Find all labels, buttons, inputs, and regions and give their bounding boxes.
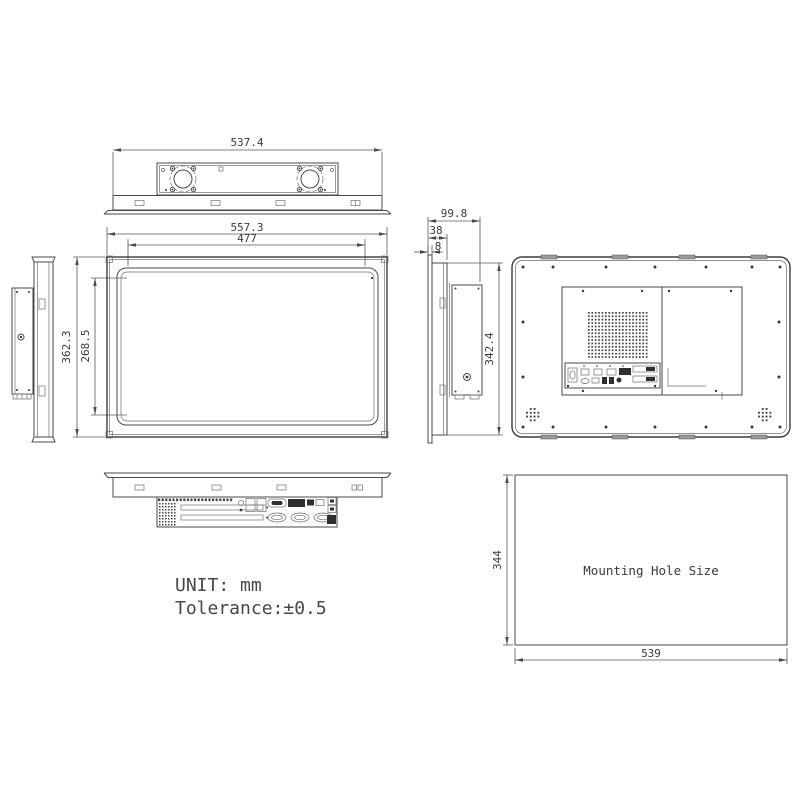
- vent-dot: [602, 346, 604, 348]
- vent-dot: [605, 353, 607, 355]
- vent-dot: [588, 332, 590, 334]
- vent-dot: [642, 343, 644, 345]
- vent-dot: [629, 356, 631, 358]
- fan-ring-left-icon: [170, 166, 196, 192]
- vent-dot: [602, 343, 604, 345]
- dim-side-rear-height: 342.4: [445, 263, 503, 435]
- mounting-cutout-rect: [515, 475, 787, 645]
- vent-dot: [622, 349, 624, 351]
- speaker-hole: [534, 419, 536, 421]
- speaker-hole: [526, 412, 528, 414]
- vent-dot: [602, 356, 604, 358]
- vent-dot: [168, 515, 170, 517]
- top-mount-bar: [113, 196, 382, 211]
- vent-dot: [632, 326, 634, 328]
- vent-dot: [588, 336, 590, 338]
- vent-dot: [642, 339, 644, 341]
- vent-dot: [646, 312, 648, 314]
- speaker-hole: [537, 416, 539, 418]
- vent-dot: [608, 339, 610, 341]
- vent-dot: [615, 336, 617, 338]
- vent-dot: [639, 346, 641, 348]
- vent-dot: [636, 346, 638, 348]
- screw: [552, 266, 555, 269]
- vent-dot: [608, 349, 610, 351]
- vent-dot: [632, 336, 634, 338]
- vent-dot: [608, 356, 610, 358]
- plate-screw: [324, 189, 326, 191]
- vent-dot: [595, 315, 597, 317]
- vent-dot: [619, 329, 621, 331]
- vent-dot: [642, 319, 644, 321]
- vent-dot: [230, 499, 232, 502]
- vent-dot: [619, 336, 621, 338]
- vent-dot: [171, 518, 173, 520]
- vent-dot: [642, 329, 644, 331]
- screw: [641, 290, 643, 292]
- vent-dot: [591, 329, 593, 331]
- front-display-opening: [117, 268, 378, 425]
- vent-dot: [602, 326, 604, 328]
- vent-dot: [595, 336, 597, 338]
- vent-dot: [159, 512, 161, 514]
- vent-dot: [612, 329, 614, 331]
- dim-label-344: 344: [491, 550, 504, 570]
- vent-dot: [165, 512, 167, 514]
- vent-dot: [162, 524, 164, 526]
- vent-dot: [608, 312, 610, 314]
- vent-dot: [605, 319, 607, 321]
- vent-dot: [646, 336, 648, 338]
- vent-dot: [629, 353, 631, 355]
- vent-dot: [205, 499, 207, 502]
- vent-dot: [629, 339, 631, 341]
- vent-dot: [622, 336, 624, 338]
- speaker-hole: [534, 416, 536, 418]
- vent-dot: [174, 518, 176, 520]
- vent-dot: [642, 353, 644, 355]
- rear-cover-outer: [512, 257, 790, 437]
- vent-dot: [622, 343, 624, 345]
- vent-dot: [602, 322, 604, 324]
- vent-dot: [629, 315, 631, 317]
- vent-dot: [629, 349, 631, 351]
- vent-dot: [615, 353, 617, 355]
- vent-dot: [171, 512, 173, 514]
- vent-dot: [602, 312, 604, 314]
- vent-dot: [162, 515, 164, 517]
- vent-dot: [615, 329, 617, 331]
- vent-dot: [165, 521, 167, 523]
- vent-dot: [646, 339, 648, 341]
- vent-dot: [639, 319, 641, 321]
- vent-dot: [625, 319, 627, 321]
- top-mount-slots: [135, 201, 360, 206]
- vent-dot: [190, 499, 192, 502]
- dim-mounting-height: 344: [491, 475, 513, 645]
- vent-dot: [605, 332, 607, 334]
- vent-dot: [622, 339, 624, 341]
- bottom-mount-slots: [135, 485, 363, 490]
- vent-dot: [619, 349, 621, 351]
- vent-dot: [619, 315, 621, 317]
- vent-dot: [174, 512, 176, 514]
- speaker-hole: [530, 412, 532, 414]
- mounting-hole-label: Mounting Hole Size: [583, 563, 718, 578]
- front-display-area: [121, 272, 374, 421]
- vent-dot: [159, 503, 161, 505]
- speaker-hole: [758, 416, 760, 418]
- vent-dot: [636, 312, 638, 314]
- vent-dot: [612, 353, 614, 355]
- vent-dot: [632, 312, 634, 314]
- vent-dot: [605, 315, 607, 317]
- screw: [779, 426, 782, 429]
- vent-dot: [636, 332, 638, 334]
- vent-dot: [629, 336, 631, 338]
- vent-dot: [591, 326, 593, 328]
- vent-dot: [608, 353, 610, 355]
- vent-dot: [636, 326, 638, 328]
- vent-dot: [198, 499, 200, 502]
- vent-dot: [591, 315, 593, 317]
- speaker-hole: [530, 408, 532, 410]
- vent-dot: [636, 329, 638, 331]
- vent-dot: [608, 326, 610, 328]
- vent-dot: [162, 503, 164, 505]
- screw: [522, 376, 525, 379]
- vent-dot: [639, 343, 641, 345]
- vent-dot: [588, 315, 590, 317]
- vent-dot: [636, 319, 638, 321]
- serial-port-top: [268, 499, 286, 507]
- screw: [582, 390, 584, 392]
- vent-dot: [602, 315, 604, 317]
- bottom-view: [104, 473, 391, 527]
- vent-dot: [636, 336, 638, 338]
- speaker-hole: [762, 412, 764, 414]
- vent-dot: [636, 322, 638, 324]
- screw: [522, 266, 525, 269]
- vent-dot: [605, 339, 607, 341]
- vent-dot: [622, 356, 624, 358]
- vent-dot: [639, 329, 641, 331]
- vent-dot: [619, 353, 621, 355]
- vent-dot: [168, 521, 170, 523]
- vent-dot: [629, 312, 631, 314]
- vent-dot: [619, 322, 621, 324]
- vent-dot: [591, 356, 593, 358]
- vent-dot: [598, 319, 600, 321]
- vent-dot: [605, 336, 607, 338]
- right-chassis: [450, 283, 483, 399]
- vent-dot: [598, 343, 600, 345]
- vent-dot: [629, 346, 631, 348]
- vent-dot: [174, 515, 176, 517]
- vent-dot: [588, 329, 590, 331]
- vent-dot: [219, 499, 221, 502]
- vent-dot: [608, 346, 610, 348]
- vent-dot: [625, 329, 627, 331]
- vent-dot: [165, 515, 167, 517]
- bottom-vent-row: [158, 499, 232, 502]
- left-clamp-slot: [39, 386, 45, 396]
- vent-dot: [159, 506, 161, 508]
- unit-note: UNIT: mm: [175, 575, 262, 596]
- vent-dot: [591, 336, 593, 338]
- vent-dot: [646, 326, 648, 328]
- vent-dot: [598, 346, 600, 348]
- vent-dot: [636, 343, 638, 345]
- screw: [522, 426, 525, 429]
- front-sensor-dot: [371, 277, 373, 279]
- screw: [567, 385, 569, 387]
- vent-dot: [625, 332, 627, 334]
- vent-dot: [212, 499, 214, 502]
- vent-dot: [162, 512, 164, 514]
- vent-dot: [174, 524, 176, 526]
- vent-dot: [598, 329, 600, 331]
- vent-dot: [602, 319, 604, 321]
- vent-dot: [598, 322, 600, 324]
- vent-dot: [595, 346, 597, 348]
- vent-dot: [608, 343, 610, 345]
- vent-dot: [187, 499, 189, 502]
- vent-dot: [602, 339, 604, 341]
- vent-dot: [612, 349, 614, 351]
- bottom-io-block: [157, 497, 337, 527]
- vent-dot: [612, 346, 614, 348]
- vent-dot: [615, 315, 617, 317]
- display-port: [307, 500, 314, 506]
- vent-dot: [612, 322, 614, 324]
- vent-dot: [622, 346, 624, 348]
- vent-dot: [598, 312, 600, 314]
- vent-dot: [625, 336, 627, 338]
- speaker-hole: [534, 412, 536, 414]
- screw: [552, 426, 555, 429]
- vent-dot: [636, 315, 638, 317]
- vent-dot: [162, 509, 164, 511]
- vent-dot: [591, 339, 593, 341]
- speaker-hole: [530, 419, 532, 421]
- vent-dot: [591, 312, 593, 314]
- vent-dot: [605, 349, 607, 351]
- front-corner-seams: [106, 256, 388, 438]
- rear-bracket-mark: [668, 368, 706, 386]
- vent-dot: [595, 322, 597, 324]
- vent-dot: [632, 332, 634, 334]
- vent-dot: [625, 315, 627, 317]
- vent-dot: [591, 343, 593, 345]
- vent-dot: [646, 353, 648, 355]
- vent-dot: [223, 499, 225, 502]
- screw: [522, 321, 525, 324]
- vent-dot: [642, 356, 644, 358]
- vent-dot: [625, 346, 627, 348]
- vent-dot: [588, 312, 590, 314]
- vent-dot: [591, 332, 593, 334]
- vent-dot: [165, 524, 167, 526]
- vent-dot: [602, 353, 604, 355]
- screw: [654, 385, 656, 387]
- vent-dot: [622, 353, 624, 355]
- bottom-bezel-lip: [104, 473, 391, 478]
- vent-dot: [639, 326, 641, 328]
- vent-dot: [642, 349, 644, 351]
- vent-dot: [615, 312, 617, 314]
- vent-dot: [619, 312, 621, 314]
- vent-dot: [622, 329, 624, 331]
- vent-dot: [168, 512, 170, 514]
- vent-dot: [591, 346, 593, 348]
- vent-dot: [615, 356, 617, 358]
- lan-ports: [328, 498, 336, 513]
- vent-dot: [588, 326, 590, 328]
- vent-dot: [639, 336, 641, 338]
- vent-dot: [619, 326, 621, 328]
- vent-dot: [605, 326, 607, 328]
- vent-dot: [159, 521, 161, 523]
- vent-dot: [612, 319, 614, 321]
- left-clamp-slot: [39, 299, 45, 309]
- dim-label-38: 38: [429, 224, 442, 237]
- vent-dot: [619, 319, 621, 321]
- vent-dot: [615, 349, 617, 351]
- mounting-hole-view: Mounting Hole Size 344 539: [491, 475, 787, 664]
- speaker-hole: [766, 419, 768, 421]
- vent-dot: [608, 319, 610, 321]
- vent-dot: [608, 332, 610, 334]
- vent-dot: [588, 339, 590, 341]
- vent-dot: [165, 499, 167, 502]
- speaker-hole: [530, 416, 532, 418]
- vent-dot: [622, 322, 624, 324]
- vent-dot: [632, 356, 634, 358]
- vent-dot: [646, 343, 648, 345]
- vent-dot: [625, 353, 627, 355]
- top-rear-plate: [157, 163, 338, 195]
- vent-dot: [208, 499, 210, 502]
- vent-dot: [642, 315, 644, 317]
- vent-dot: [158, 499, 160, 502]
- vent-dot: [605, 329, 607, 331]
- vent-dot: [598, 349, 600, 351]
- dim-mounting-width: 539: [515, 647, 787, 664]
- vent-dot: [625, 326, 627, 328]
- top-bezel-lip: [104, 211, 391, 215]
- vent-dot: [183, 499, 185, 502]
- vent-dot: [639, 356, 641, 358]
- vent-dot: [168, 506, 170, 508]
- vent-dot: [605, 356, 607, 358]
- dim-side-front-lip: 8: [414, 240, 443, 255]
- vent-dot: [632, 319, 634, 321]
- speaker-hole: [769, 416, 771, 418]
- vent-dot: [595, 343, 597, 345]
- vent-dot: [165, 506, 167, 508]
- vent-dot: [615, 346, 617, 348]
- vent-dot: [622, 326, 624, 328]
- speaker-hole: [537, 412, 539, 414]
- vent-dot: [615, 343, 617, 345]
- vent-dot: [168, 509, 170, 511]
- vent-dot: [632, 353, 634, 355]
- vent-dot: [646, 329, 648, 331]
- dim-label-362-3: 362.3: [60, 330, 73, 363]
- dim-label-268-5: 268.5: [79, 329, 92, 362]
- vent-dot: [646, 332, 648, 334]
- rear-cover-inner: [516, 261, 787, 434]
- right-clamp-slot: [440, 298, 445, 308]
- vent-dot: [588, 322, 590, 324]
- drawing-notes: UNIT: mm Tolerance:±0.5: [175, 575, 327, 619]
- vent-dot: [171, 503, 173, 505]
- screw: [778, 321, 781, 324]
- vent-dot: [642, 312, 644, 314]
- vent-dot: [591, 322, 593, 324]
- vent-dot: [615, 326, 617, 328]
- vent-dot: [598, 353, 600, 355]
- expansion-slot: [181, 505, 263, 510]
- vent-dot: [642, 326, 644, 328]
- vent-dot: [588, 349, 590, 351]
- vent-dot: [165, 509, 167, 511]
- vent-dot: [612, 343, 614, 345]
- vent-dot: [159, 509, 161, 511]
- technical-drawing-page: 537.4: [0, 0, 800, 800]
- vent-dot: [619, 343, 621, 345]
- vent-dot: [639, 312, 641, 314]
- vent-dot: [642, 336, 644, 338]
- vent-dot: [615, 339, 617, 341]
- speaker-grill-right: [758, 408, 771, 421]
- vent-dot: [632, 322, 634, 324]
- vent-dot: [639, 332, 641, 334]
- screw: [654, 426, 657, 429]
- vent-dot: [612, 339, 614, 341]
- vent-dot: [625, 312, 627, 314]
- vent-dot: [595, 353, 597, 355]
- vent-dot: [595, 339, 597, 341]
- audio-jack-block: [316, 500, 324, 506]
- dim-label-99-8: 99.8: [441, 207, 468, 220]
- fan-ring-right-icon: [297, 166, 323, 192]
- vent-dot: [619, 339, 621, 341]
- screw: [779, 266, 782, 269]
- right-bezel-profile: [428, 255, 447, 443]
- rear-chassis-box: [562, 287, 742, 400]
- vent-dot: [180, 499, 182, 502]
- vent-dot: [639, 353, 641, 355]
- vent-dot: [612, 336, 614, 338]
- vent-dot: [591, 319, 593, 321]
- vent-dot: [615, 319, 617, 321]
- reset-button-icon: [240, 509, 243, 512]
- vent-dot: [605, 322, 607, 324]
- vent-dot: [636, 356, 638, 358]
- power-inlet: [327, 515, 336, 524]
- vent-dot: [625, 349, 627, 351]
- vent-dot: [172, 499, 174, 502]
- vent-dot: [588, 353, 590, 355]
- vent-dot: [642, 346, 644, 348]
- tolerance-note: Tolerance:±0.5: [175, 598, 327, 619]
- vent-dot: [622, 319, 624, 321]
- screw: [751, 426, 754, 429]
- vent-dot: [608, 322, 610, 324]
- vent-dot: [216, 499, 218, 502]
